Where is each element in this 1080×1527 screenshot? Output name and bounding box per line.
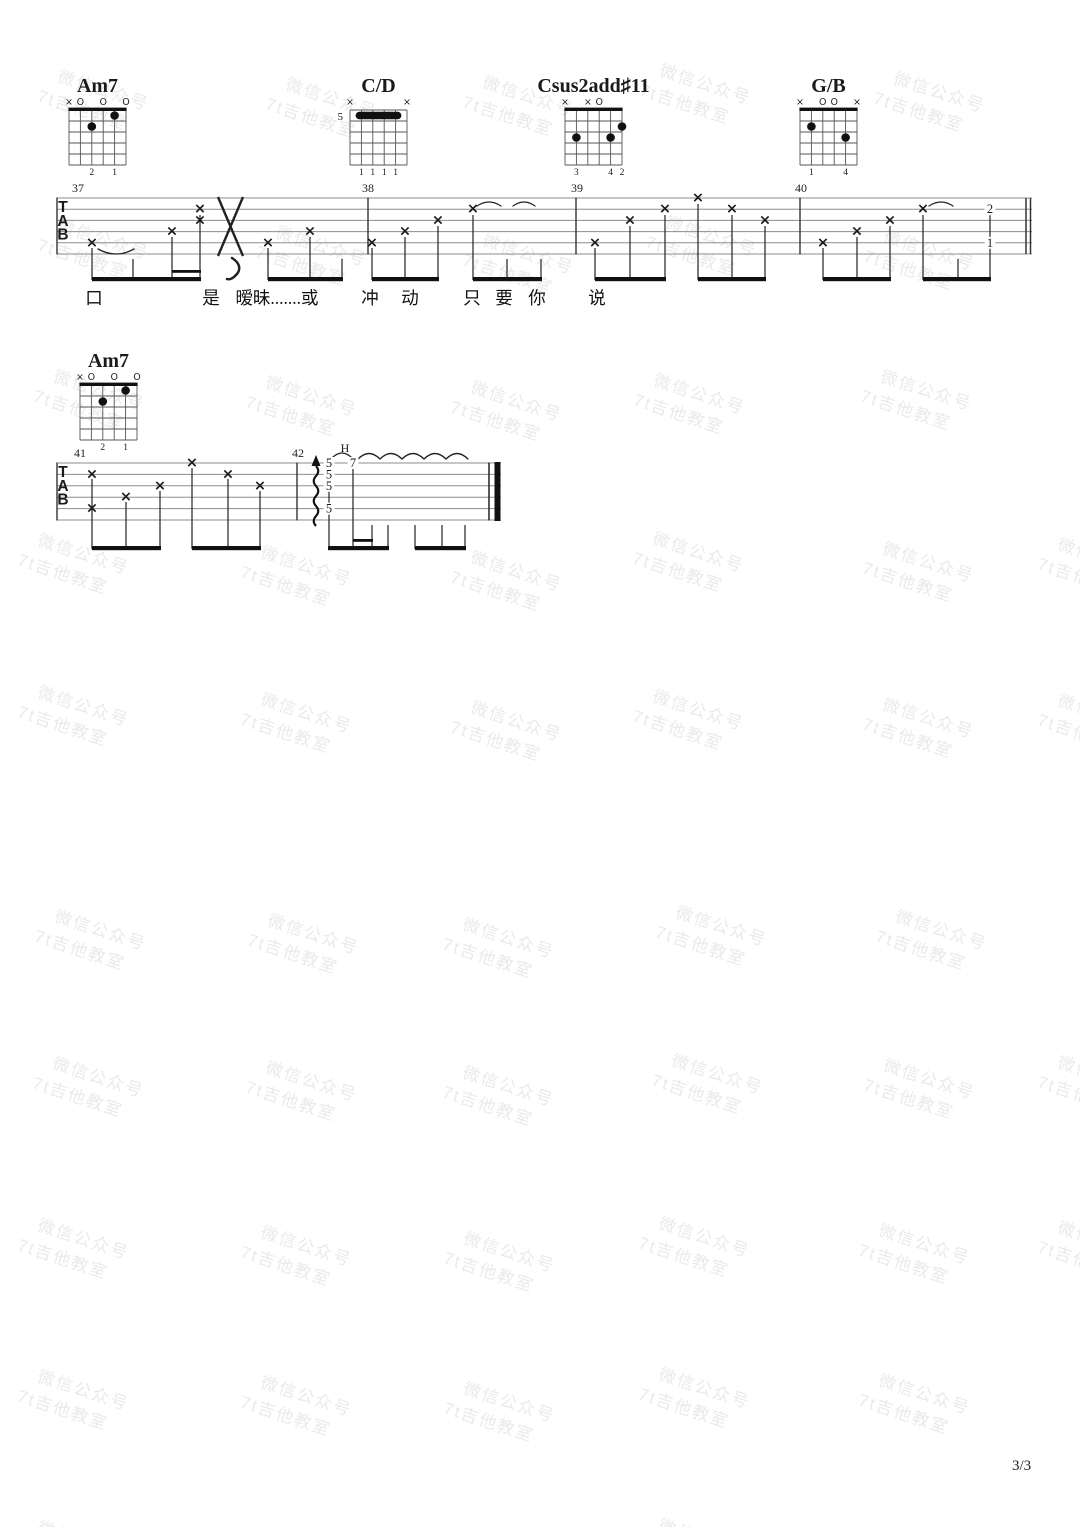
eighth-beam: [328, 546, 389, 550]
sixteenth-beam: [353, 539, 373, 542]
chord-dot: [88, 122, 97, 131]
chord-diagram-am7: Am7×OOO21: [65, 75, 130, 178]
final-barline-thick: [495, 462, 501, 521]
open-string-marker: O: [595, 97, 602, 108]
measure-number: 38: [362, 181, 374, 195]
dead-note-head: ×: [917, 201, 929, 217]
chord-name: Csus2add♯11: [537, 75, 649, 97]
open-string-marker: O: [122, 97, 129, 108]
dead-note-head: ×: [86, 466, 98, 482]
chord-finger-number: 2: [100, 443, 105, 453]
dead-note-head: ×: [817, 235, 829, 251]
chord-finger-number: 1: [112, 168, 117, 178]
chord-finger-number: 1: [393, 168, 398, 178]
sheet-music-page: 微信公众号7t吉他教室微信公众号7t吉他教室微信公众号7t吉他教室微信公众号7t…: [0, 0, 1080, 1527]
lyric-syllable: 口: [85, 288, 103, 308]
dead-note-head: ×: [154, 478, 166, 494]
chord-finger-number: 2: [89, 168, 94, 178]
dead-note-head: ×: [884, 212, 896, 228]
tab-clef-letter: B: [57, 492, 68, 509]
tie-arc: [358, 454, 380, 460]
chord-dot: [606, 133, 615, 142]
open-string-marker: O: [99, 97, 106, 108]
dead-note-head: ×: [659, 201, 671, 217]
dead-note-head: ×: [851, 224, 863, 240]
dead-note-head: ×: [467, 201, 479, 217]
open-string-marker: O: [830, 97, 837, 108]
dead-note-head: ×: [120, 489, 132, 505]
muted-string-marker: ×: [561, 97, 569, 108]
open-string-marker: O: [110, 372, 117, 383]
chord-name: G/B: [811, 75, 845, 97]
fret-number: 7: [350, 456, 356, 470]
eighth-beam: [415, 546, 466, 550]
tie-arc: [446, 454, 468, 460]
measure-number: 42: [292, 446, 304, 460]
muted-string-marker: ×: [76, 372, 84, 383]
eighth-beam: [823, 277, 891, 281]
chord-barre: [356, 112, 402, 120]
eighth-beam: [923, 277, 991, 281]
tie-arc: [98, 249, 134, 254]
tie-arc: [929, 202, 953, 206]
tab-system-1: TAB37383940××××××××××××××××××××21口是暧昧...…: [57, 181, 1032, 308]
chord-diagram-gb: G/B×OO×14: [796, 75, 861, 178]
rest-comma: [227, 258, 239, 279]
dead-note-head: ×: [692, 190, 704, 206]
chord-name: Am7: [88, 350, 129, 372]
lyric-syllable: 是: [202, 288, 220, 308]
chord-finger-number: 1: [359, 168, 364, 178]
dead-note-head: ×: [366, 235, 378, 251]
muted-string-marker: ×: [65, 97, 73, 108]
tie-arc: [513, 202, 535, 206]
open-string-marker: O: [88, 372, 95, 383]
strum-arrowhead: [312, 455, 321, 466]
chord-dot: [99, 397, 108, 406]
strum-squiggle: [314, 466, 319, 526]
measure-number: 41: [74, 446, 86, 460]
chord-nut: [68, 108, 126, 111]
dead-note-head: ×: [166, 224, 178, 240]
dead-note-head: ×: [589, 235, 601, 251]
dead-note-head: ×: [254, 478, 266, 494]
muted-string-marker: ×: [403, 97, 411, 108]
chord-finger-number: 3: [574, 168, 579, 178]
chord-nut: [799, 108, 857, 111]
guitar-tab-score: Am7×OOO21C/D5××1111Csus2add♯11××O342G/B×…: [0, 0, 1080, 1527]
chord-position-label: 5: [338, 111, 344, 123]
chord-finger-number: 1: [809, 168, 814, 178]
eighth-beam: [192, 546, 261, 550]
dead-note-head: ×: [304, 224, 316, 240]
chord-finger-number: 4: [608, 168, 613, 178]
dead-note-head: ×: [624, 212, 636, 228]
chord-finger-number: 1: [370, 168, 375, 178]
tie-arc: [402, 454, 424, 460]
tie-arc: [477, 202, 501, 206]
chord-nut: [564, 108, 622, 111]
chord-finger-number: 1: [382, 168, 387, 178]
chord-name: Am7: [77, 75, 118, 97]
eighth-beam: [92, 277, 201, 281]
eighth-beam: [595, 277, 666, 281]
lyric-syllable: 说: [588, 288, 606, 308]
lyric-syllable: 暧昧.......或: [235, 288, 318, 308]
tie-arc: [380, 454, 402, 460]
chord-dot: [807, 122, 816, 131]
chord-nut: [79, 383, 137, 386]
measure-number: 39: [571, 181, 583, 195]
fret-number: 5: [326, 479, 332, 493]
eighth-beam: [372, 277, 439, 281]
lyric-syllable: 动: [401, 288, 419, 308]
measure-number: 40: [795, 181, 807, 195]
chord-dot: [110, 111, 119, 120]
fret-number: 1: [987, 236, 993, 250]
dead-note-head: ×: [186, 455, 198, 471]
dead-note-head: ×: [86, 235, 98, 251]
fret-number: 2: [987, 202, 993, 216]
chord-diagram-cd: C/D5××1111: [338, 75, 411, 178]
chord-finger-number: 4: [843, 168, 848, 178]
chord-diagram-csus2add11: Csus2add♯11××O342: [537, 75, 649, 178]
dead-note-head: ×: [86, 501, 98, 517]
open-string-marker: O: [77, 97, 84, 108]
eighth-beam: [92, 546, 161, 550]
lyric-syllable: 你: [528, 288, 546, 308]
chord-name: C/D: [361, 75, 395, 97]
chord-dot: [841, 133, 850, 142]
tie-arc: [424, 454, 446, 460]
eighth-beam: [473, 277, 542, 281]
chord-diagram-am7: Am7×OOO21: [76, 350, 141, 453]
muted-string-marker: ×: [853, 97, 861, 108]
lyric-syllable: 只: [463, 288, 481, 308]
chord-dot: [121, 386, 130, 395]
open-string-marker: O: [133, 372, 140, 383]
lyric-syllable: 冲: [361, 288, 379, 308]
eighth-beam: [268, 277, 343, 281]
dead-note-head: ×: [726, 201, 738, 217]
muted-string-marker: ×: [584, 97, 592, 108]
measure-number: 37: [72, 181, 84, 195]
tab-system-2: TAB4142H×××××××55557: [57, 441, 501, 550]
chord-dot: [618, 122, 627, 131]
chord-finger-number: 2: [620, 168, 625, 178]
dead-note-head: ×: [399, 224, 411, 240]
dead-note-head: ×: [194, 212, 206, 228]
sixteenth-beam: [172, 270, 201, 273]
muted-string-marker: ×: [796, 97, 804, 108]
lyric-syllable: 要: [495, 288, 513, 308]
page-number: 3/3: [1012, 1458, 1072, 1475]
fret-number: 5: [326, 502, 332, 516]
chord-dot: [572, 133, 581, 142]
dead-note-head: ×: [222, 466, 234, 482]
muted-string-marker: ×: [346, 97, 354, 108]
dead-note-head: ×: [759, 212, 771, 228]
dead-note-head: ×: [432, 212, 444, 228]
tab-clef-letter: B: [57, 227, 68, 244]
chord-finger-number: 1: [123, 443, 128, 453]
dead-note-head: ×: [262, 235, 274, 251]
eighth-beam: [698, 277, 766, 281]
hammer-on-label: H: [341, 441, 350, 455]
open-string-marker: O: [819, 97, 826, 108]
